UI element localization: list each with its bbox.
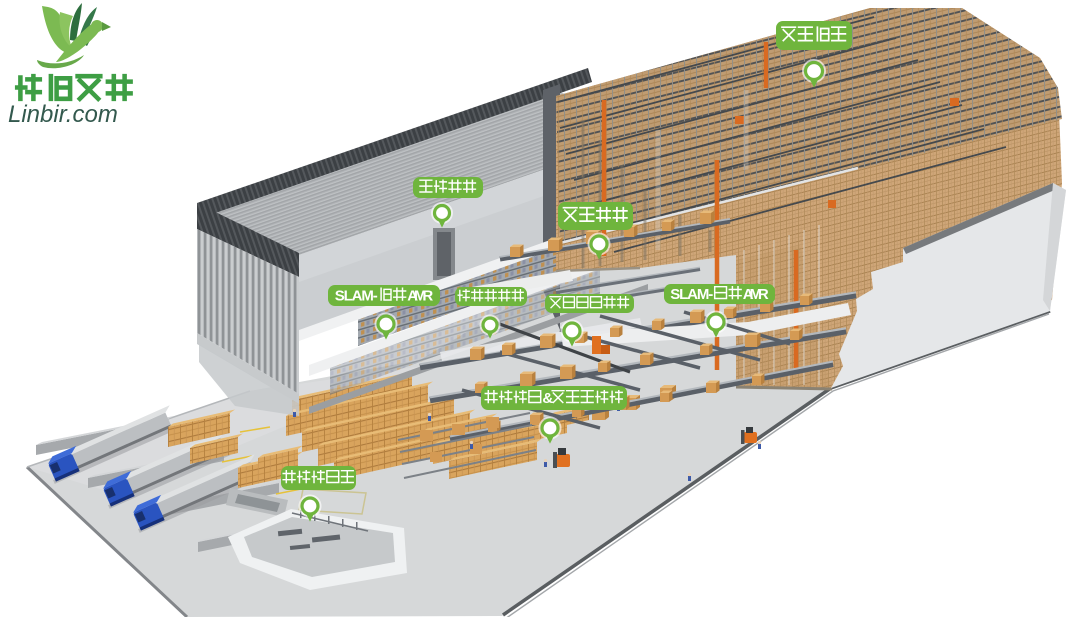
- svg-text:Linbir.com: Linbir.com: [8, 101, 118, 128]
- svg-text:SLAM-: SLAM-: [670, 286, 713, 303]
- svg-text:AMR: AMR: [407, 287, 433, 304]
- svg-text:SLAM-: SLAM-: [335, 287, 378, 304]
- svg-text:AMR: AMR: [743, 286, 769, 303]
- svg-text:&: &: [542, 390, 553, 407]
